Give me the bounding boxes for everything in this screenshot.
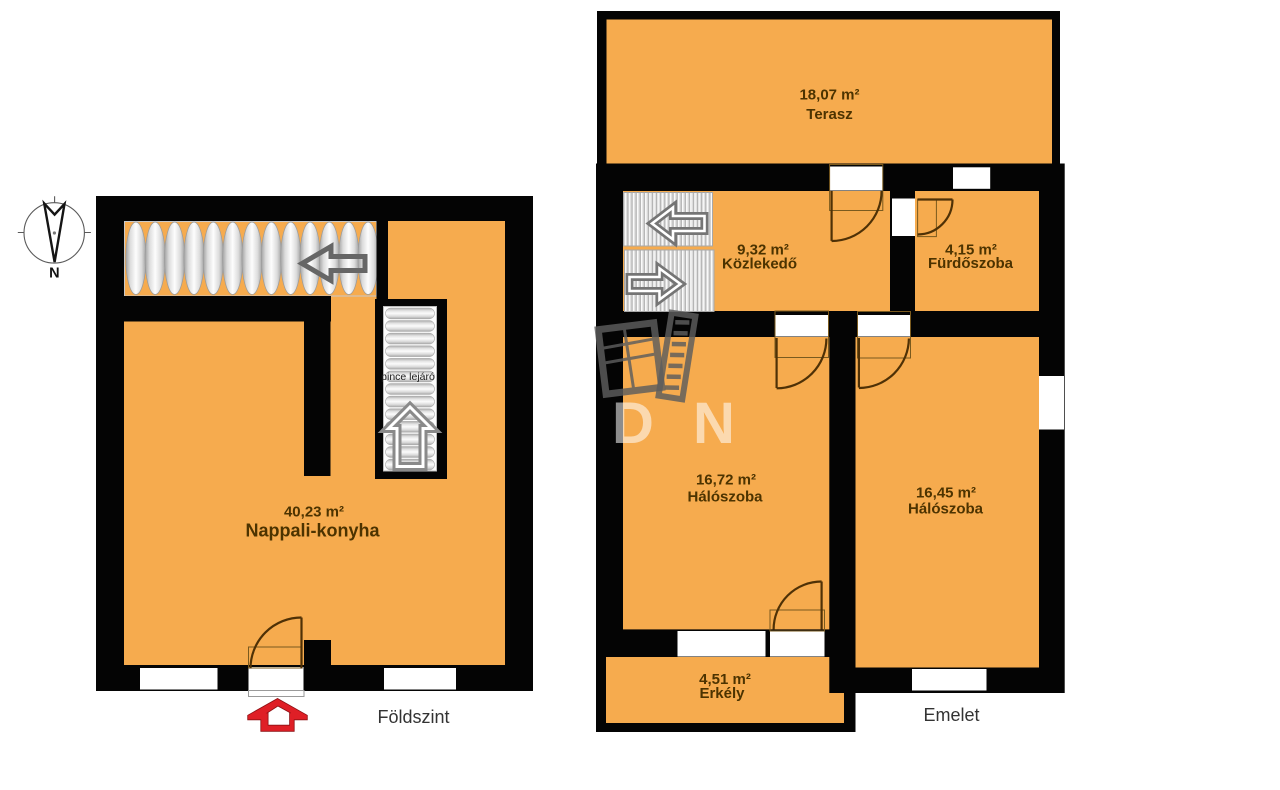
svg-text:Földszint: Földszint — [377, 707, 449, 727]
svg-text:Hálószoba: Hálószoba — [908, 501, 984, 518]
svg-text:N: N — [49, 266, 59, 282]
svg-text:40,23 m²: 40,23 m² — [284, 504, 344, 521]
svg-text:Hálószoba: Hálószoba — [687, 489, 763, 506]
svg-text:Fürdőszoba: Fürdőszoba — [928, 255, 1014, 272]
svg-text:Terasz: Terasz — [806, 106, 852, 123]
svg-text:Emelet: Emelet — [923, 705, 979, 725]
svg-text:Közlekedő: Közlekedő — [722, 256, 797, 273]
svg-text:Erkély: Erkély — [699, 685, 745, 702]
svg-text:18,07 m²: 18,07 m² — [799, 87, 859, 104]
svg-text:16,45 m²: 16,45 m² — [916, 485, 976, 502]
svg-text:D: D — [612, 391, 654, 456]
svg-text:16,72 m²: 16,72 m² — [696, 472, 756, 489]
svg-text:Nappali-konyha: Nappali-konyha — [245, 521, 380, 541]
svg-text:N: N — [693, 391, 735, 456]
svg-text:pince lejáró: pince lejáró — [381, 371, 435, 383]
